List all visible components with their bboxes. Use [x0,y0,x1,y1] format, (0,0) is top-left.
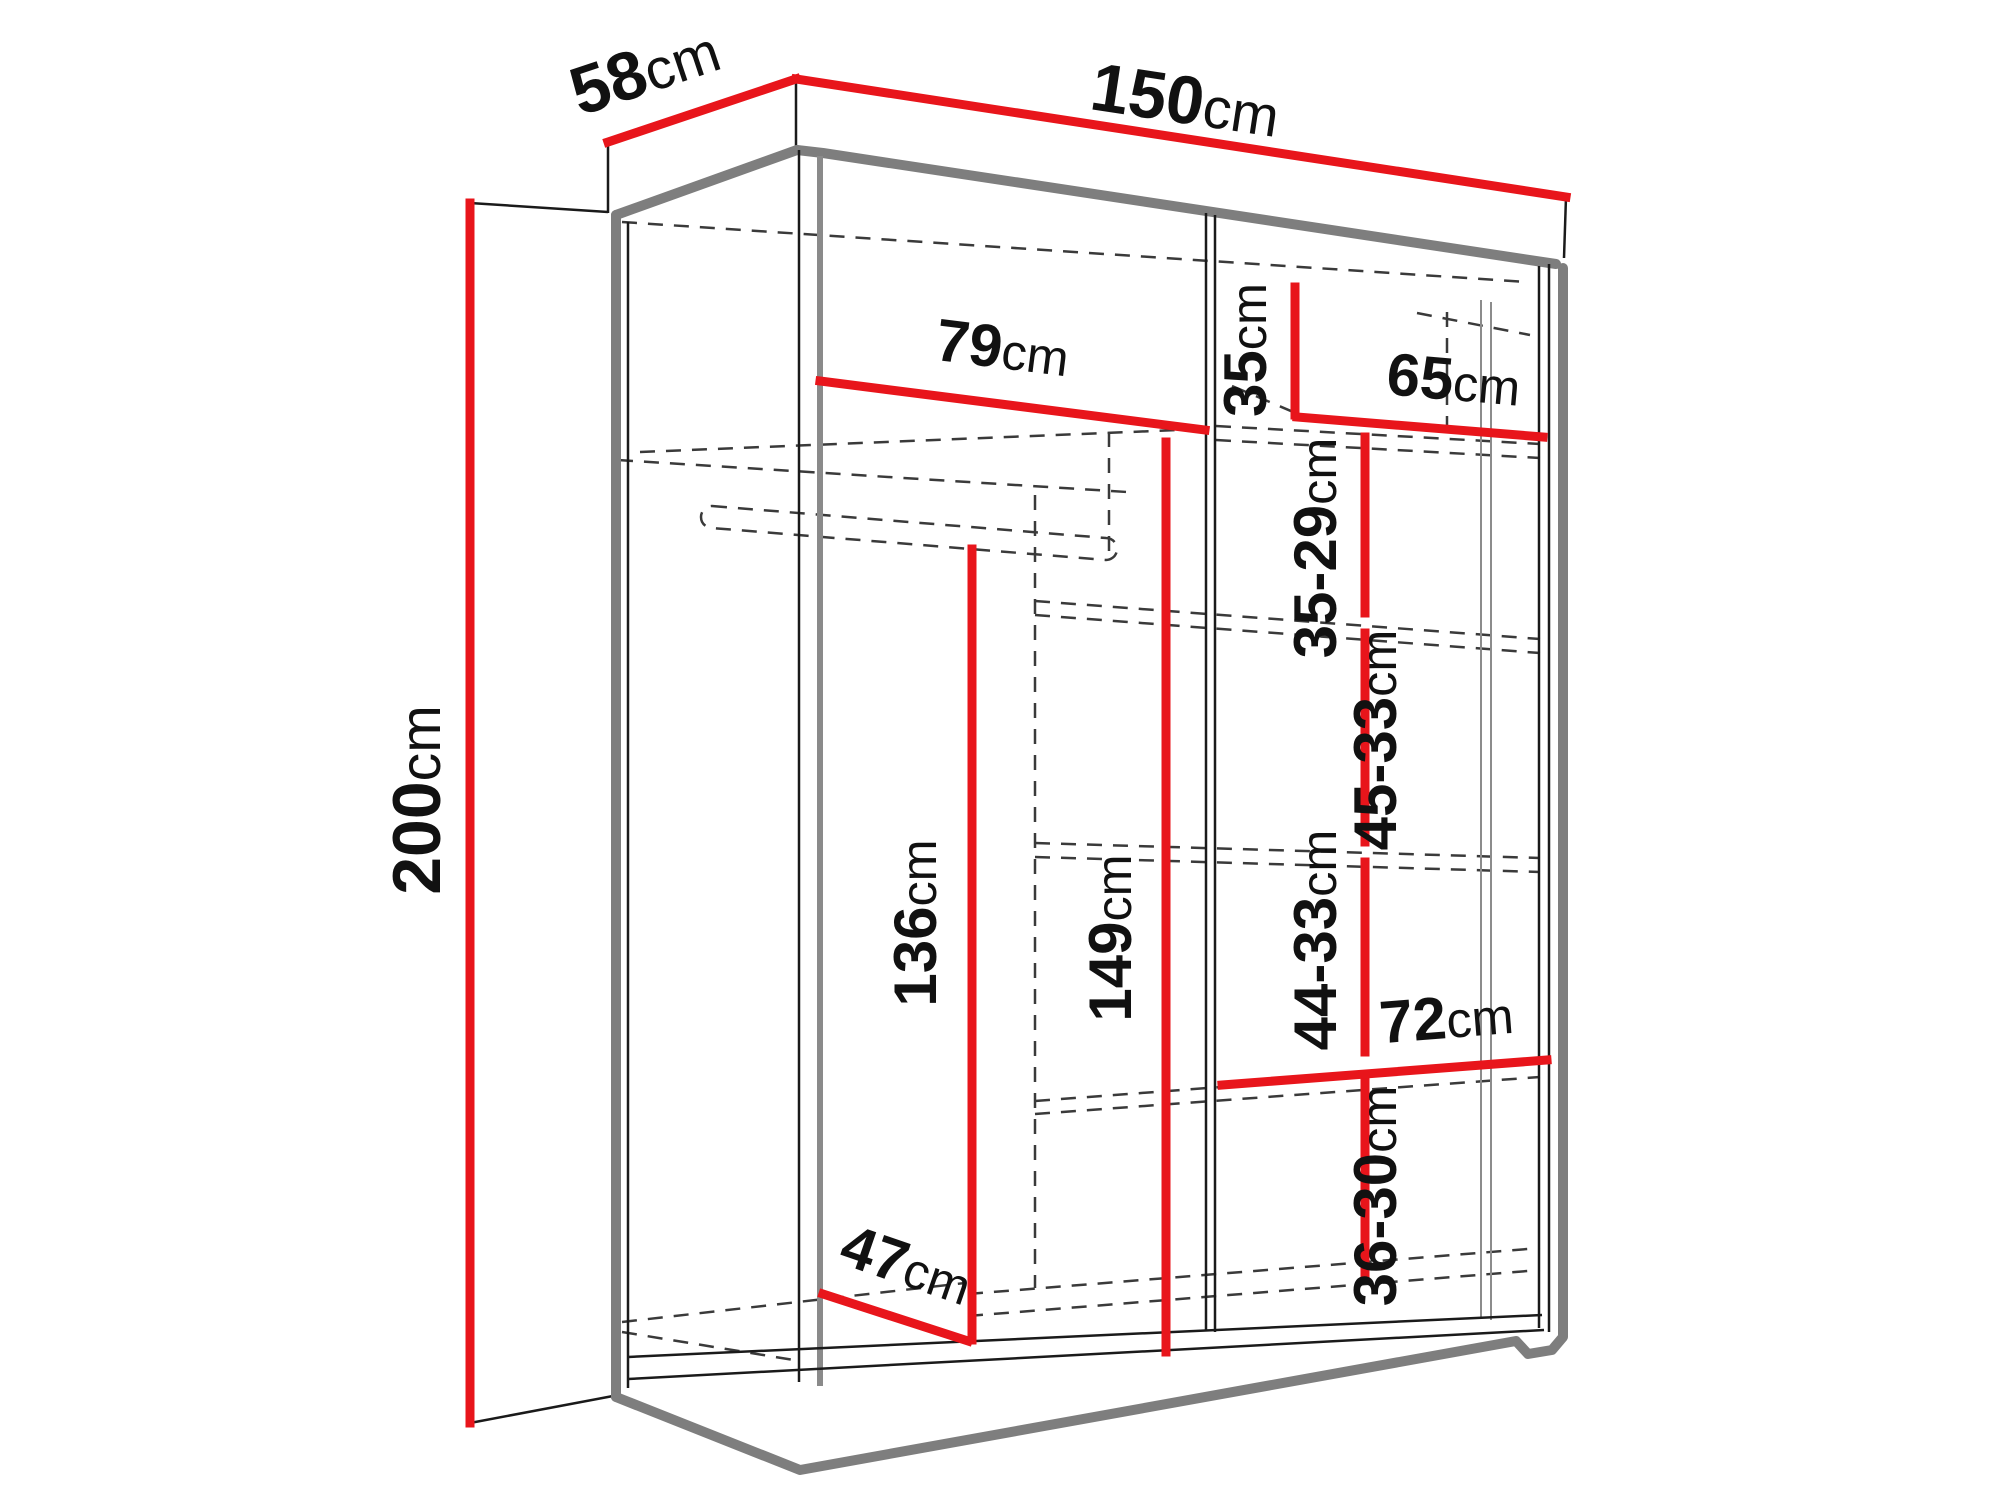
right-section-width-label: 65cm [1384,340,1523,418]
floor-front-edge-dashed [968,1270,1540,1316]
undertop-left-front-edge-dashed [618,460,1127,492]
shelf-gap-2-label: 45-33cm [1342,630,1409,851]
shelf-gap-4-label: 36-30cm [1342,1086,1409,1307]
undertop-left-back-edge-dashed [640,429,1203,452]
crown-bottom-left-edge [616,150,797,215]
dimension-labels: 58cm 150cm 200cm 79cm 35cm 65cm 35-29cm … [379,10,1523,1318]
wardrobe-dimension-diagram: 58cm 150cm 200cm 79cm 35cm 65cm 35-29cm … [0,0,2000,1500]
crown-right-edge [1564,197,1566,258]
floor-panel-top-edge [628,1315,1542,1357]
right-section-back-top-edge-dashed [1417,313,1530,335]
side-panel-bottom-edge [470,1396,613,1423]
crown-bottom-front-edge [797,150,1556,264]
left-section-width-label: 79cm [932,306,1073,389]
height-label: 200cm [379,705,455,895]
bottom-shelf-width-line [1222,1060,1547,1085]
floor-back-edge-dashed [968,1248,1540,1294]
hanging-rod-dashed [701,506,1117,560]
crown-back-edge-dashed [622,222,1527,282]
left-section-width-line [820,381,1205,430]
diagram-canvas: 58cm 150cm 200cm 79cm 35cm 65cm 35-29cm … [0,0,2000,1500]
side-panel-top-edge [470,203,608,212]
floor-panel-bottom-edge [628,1330,1544,1379]
hanging-height-label: 136cm [882,839,949,1006]
width-label: 150cm [1086,49,1285,152]
top-shelf-drop-label: 35cm [1212,283,1279,417]
interior-height-label: 149cm [1077,854,1144,1021]
bottom-shelf-width-label: 72cm [1377,979,1516,1056]
shelf-gap-3-label: 44-33cm [1282,830,1349,1051]
right-section-width-line [1297,417,1543,437]
shelf-gap-1-label: 35-29cm [1282,438,1349,659]
